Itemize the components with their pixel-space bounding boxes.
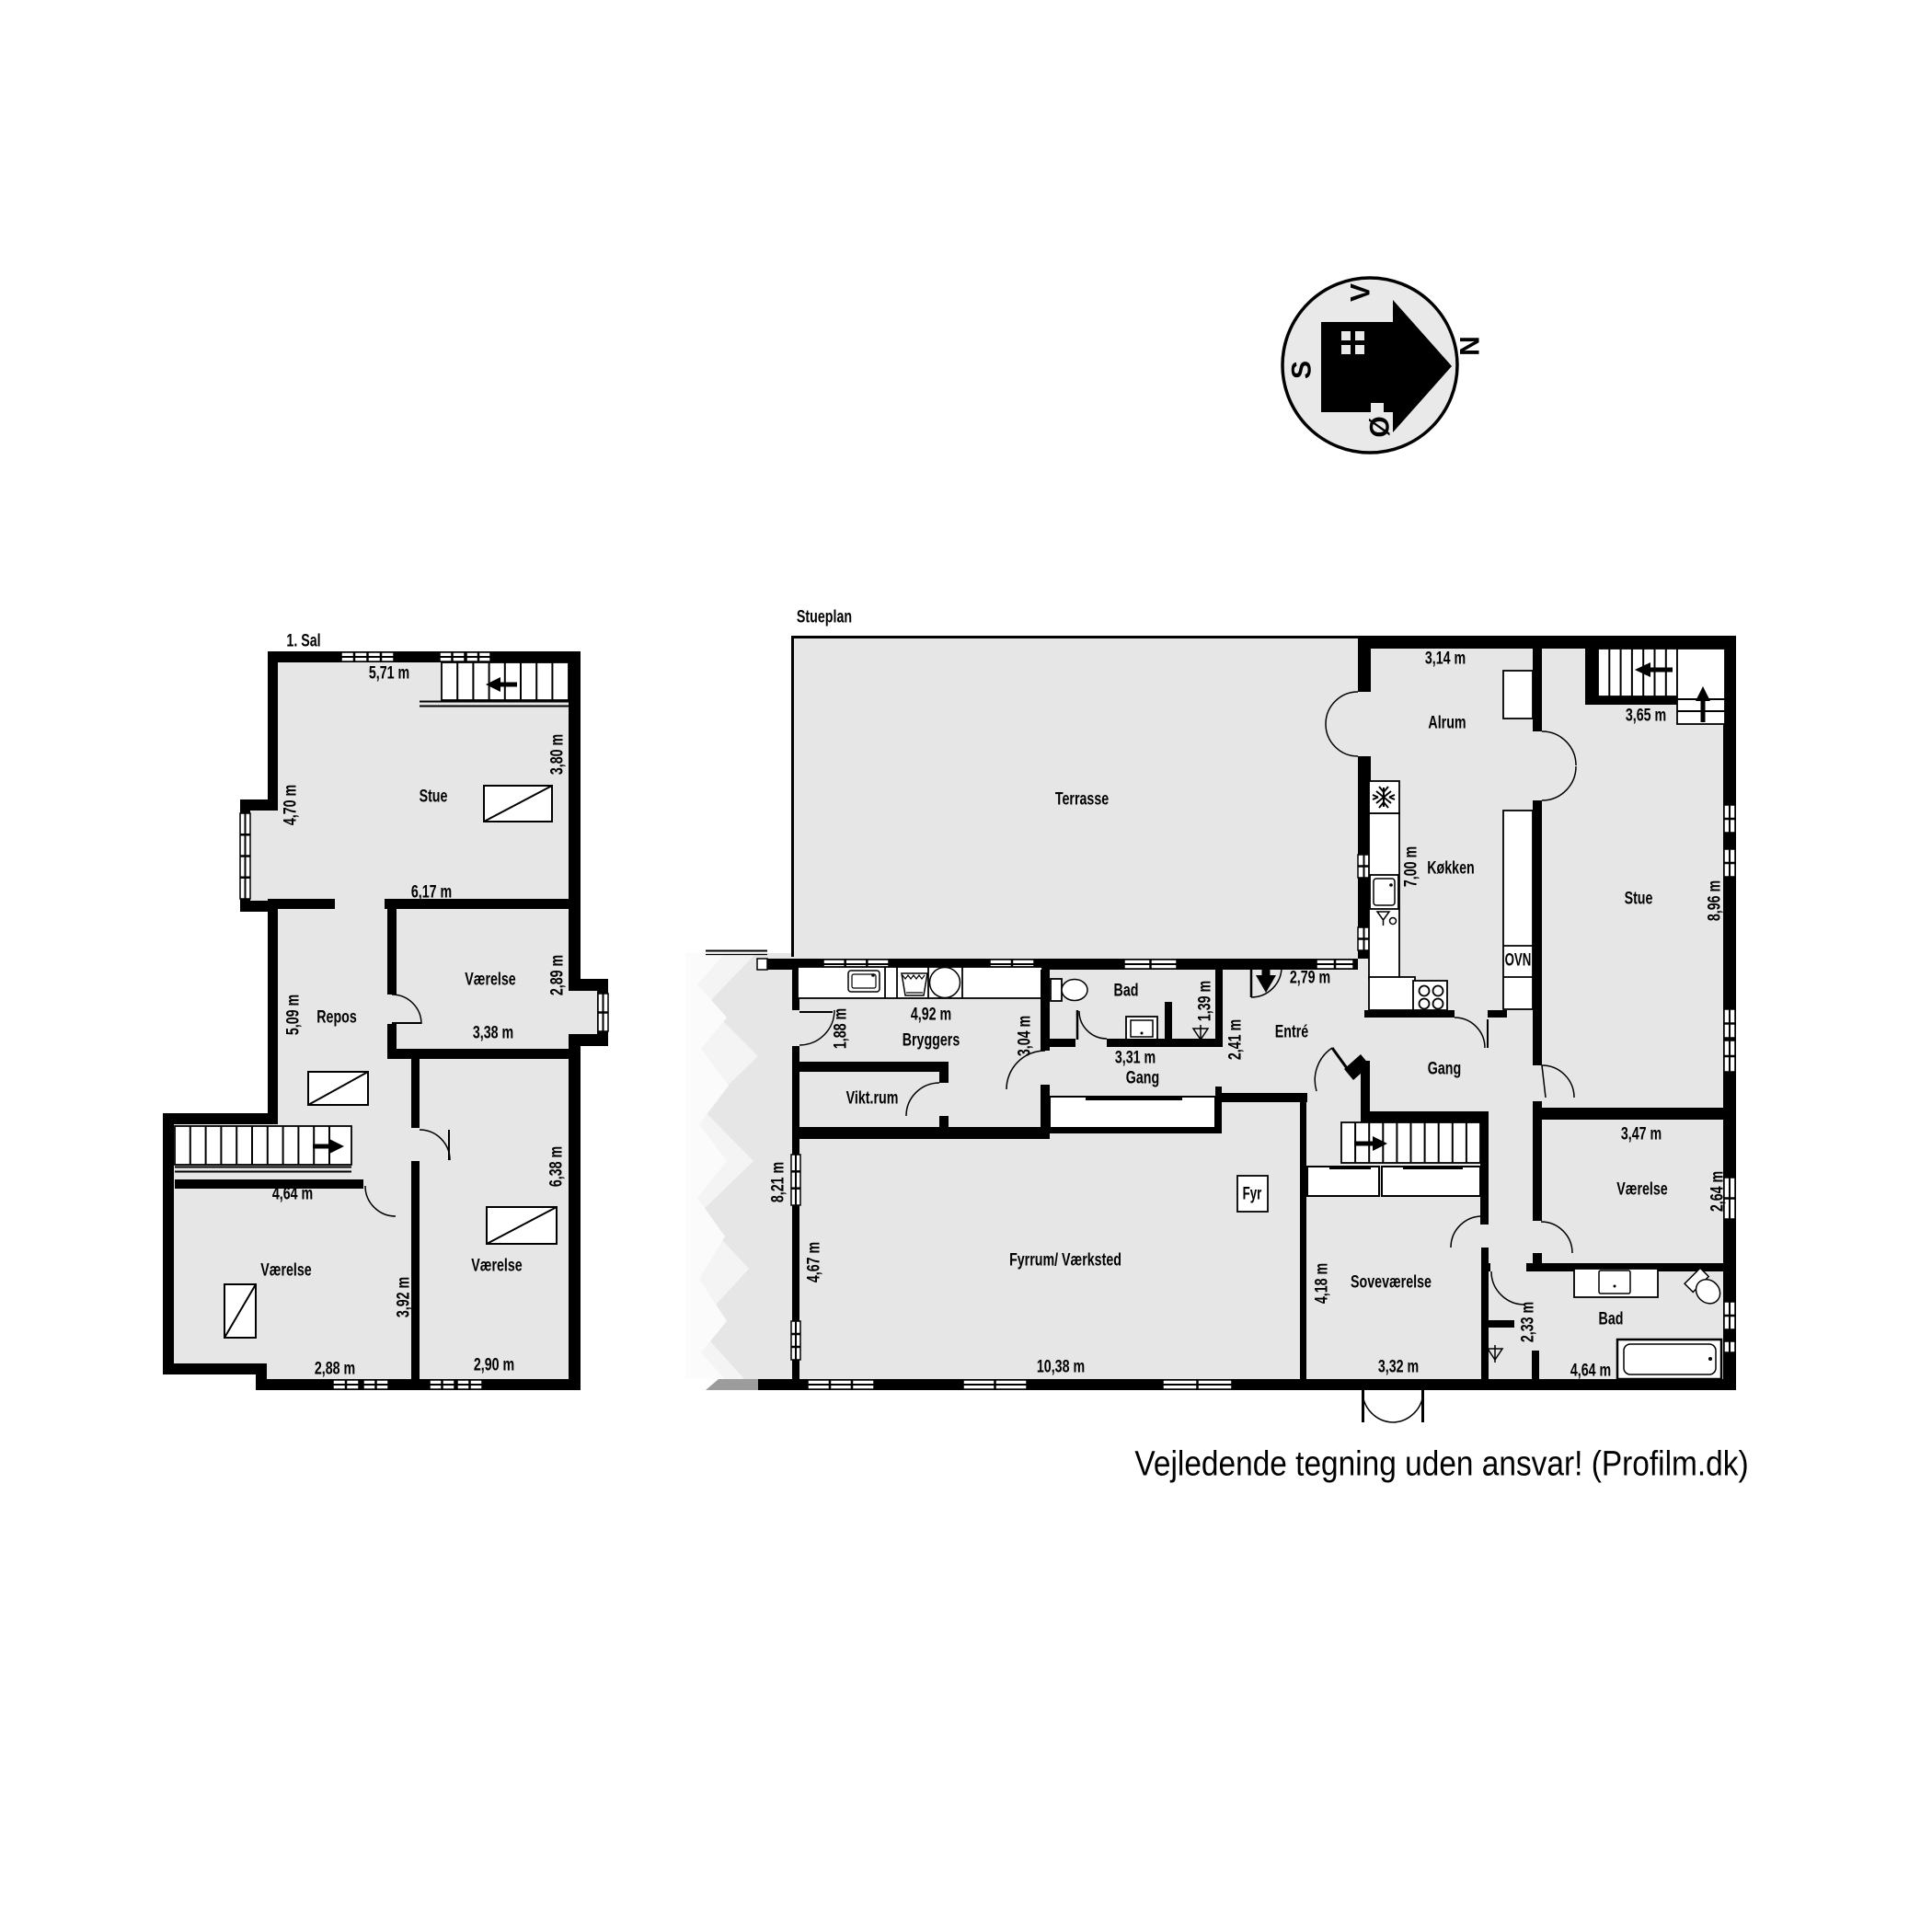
svg-text:Vikt.rum: Vikt.rum xyxy=(846,1088,899,1108)
svg-text:Stue: Stue xyxy=(420,787,448,806)
svg-text:Værelse: Værelse xyxy=(465,970,515,989)
svg-text:Gang: Gang xyxy=(1428,1059,1461,1078)
svg-text:OVN: OVN xyxy=(1505,950,1532,970)
svg-text:5,71 m: 5,71 m xyxy=(369,663,409,683)
svg-text:3,31 m: 3,31 m xyxy=(1115,1048,1156,1067)
svg-text:3,38 m: 3,38 m xyxy=(473,1023,513,1042)
svg-text:Værelse: Værelse xyxy=(260,1260,311,1280)
svg-text:Stueplan: Stueplan xyxy=(797,607,852,627)
svg-text:2,33 m: 2,33 m xyxy=(1518,1302,1537,1342)
svg-text:2,79 m: 2,79 m xyxy=(1290,968,1330,987)
svg-text:10,38 m: 10,38 m xyxy=(1037,1357,1085,1376)
svg-text:3,04 m: 3,04 m xyxy=(1015,1016,1034,1056)
svg-text:Terrasse: Terrasse xyxy=(1055,789,1109,809)
svg-text:Bad: Bad xyxy=(1114,981,1139,1000)
svg-text:4,67 m: 4,67 m xyxy=(804,1242,823,1282)
svg-text:3,92 m: 3,92 m xyxy=(394,1277,413,1317)
svg-text:V: V xyxy=(1346,283,1376,302)
svg-text:Fyr: Fyr xyxy=(1243,1184,1262,1203)
svg-text:Vejledende tegning uden ansvar: Vejledende tegning uden ansvar! (Profilm… xyxy=(1134,1443,1748,1482)
svg-text:Stue: Stue xyxy=(1625,889,1653,908)
svg-text:3,14 m: 3,14 m xyxy=(1425,649,1466,668)
svg-text:3,80 m: 3,80 m xyxy=(547,734,567,775)
svg-text:2,41 m: 2,41 m xyxy=(1225,1019,1245,1060)
svg-text:8,96 m: 8,96 m xyxy=(1705,880,1724,921)
svg-text:S: S xyxy=(1287,361,1317,379)
svg-text:Værelse: Værelse xyxy=(471,1256,522,1275)
svg-text:4,92 m: 4,92 m xyxy=(911,1005,951,1024)
svg-text:Soveværelse: Soveværelse xyxy=(1351,1272,1432,1292)
svg-text:Ø: Ø xyxy=(1365,416,1396,437)
svg-text:4,64 m: 4,64 m xyxy=(272,1184,313,1203)
svg-text:N: N xyxy=(1455,336,1486,356)
svg-text:6,17 m: 6,17 m xyxy=(411,882,452,902)
svg-text:3,65 m: 3,65 m xyxy=(1626,706,1666,725)
svg-text:Alrum: Alrum xyxy=(1428,713,1466,732)
svg-text:1. Sal: 1. Sal xyxy=(286,631,320,650)
svg-text:3,32 m: 3,32 m xyxy=(1378,1357,1419,1376)
svg-text:2,90 m: 2,90 m xyxy=(474,1355,514,1374)
svg-text:2,64 m: 2,64 m xyxy=(1708,1171,1727,1212)
svg-text:2,88 m: 2,88 m xyxy=(315,1359,355,1378)
svg-text:Bad: Bad xyxy=(1599,1309,1624,1328)
svg-text:Repos: Repos xyxy=(316,1007,357,1027)
svg-text:7,00 m: 7,00 m xyxy=(1401,846,1420,887)
svg-text:Værelse: Værelse xyxy=(1616,1179,1667,1199)
svg-text:Entré: Entré xyxy=(1275,1022,1308,1041)
svg-text:4,18 m: 4,18 m xyxy=(1312,1263,1331,1304)
svg-text:8,21 m: 8,21 m xyxy=(768,1162,788,1202)
svg-text:1,39 m: 1,39 m xyxy=(1195,981,1214,1021)
svg-text:Gang: Gang xyxy=(1126,1068,1159,1087)
svg-text:5,09 m: 5,09 m xyxy=(283,995,303,1035)
svg-text:4,64 m: 4,64 m xyxy=(1570,1361,1611,1380)
svg-text:Bryggers: Bryggers xyxy=(903,1030,960,1050)
svg-text:Køkken: Køkken xyxy=(1427,858,1474,878)
svg-text:1,88 m: 1,88 m xyxy=(831,1008,850,1049)
svg-text:6,38 m: 6,38 m xyxy=(546,1146,566,1187)
svg-text:2,89 m: 2,89 m xyxy=(547,955,567,995)
svg-text:Fyrrum/ Værksted: Fyrrum/ Værksted xyxy=(1009,1250,1121,1270)
svg-text:3,47 m: 3,47 m xyxy=(1621,1124,1662,1144)
svg-text:4,70 m: 4,70 m xyxy=(281,785,300,825)
